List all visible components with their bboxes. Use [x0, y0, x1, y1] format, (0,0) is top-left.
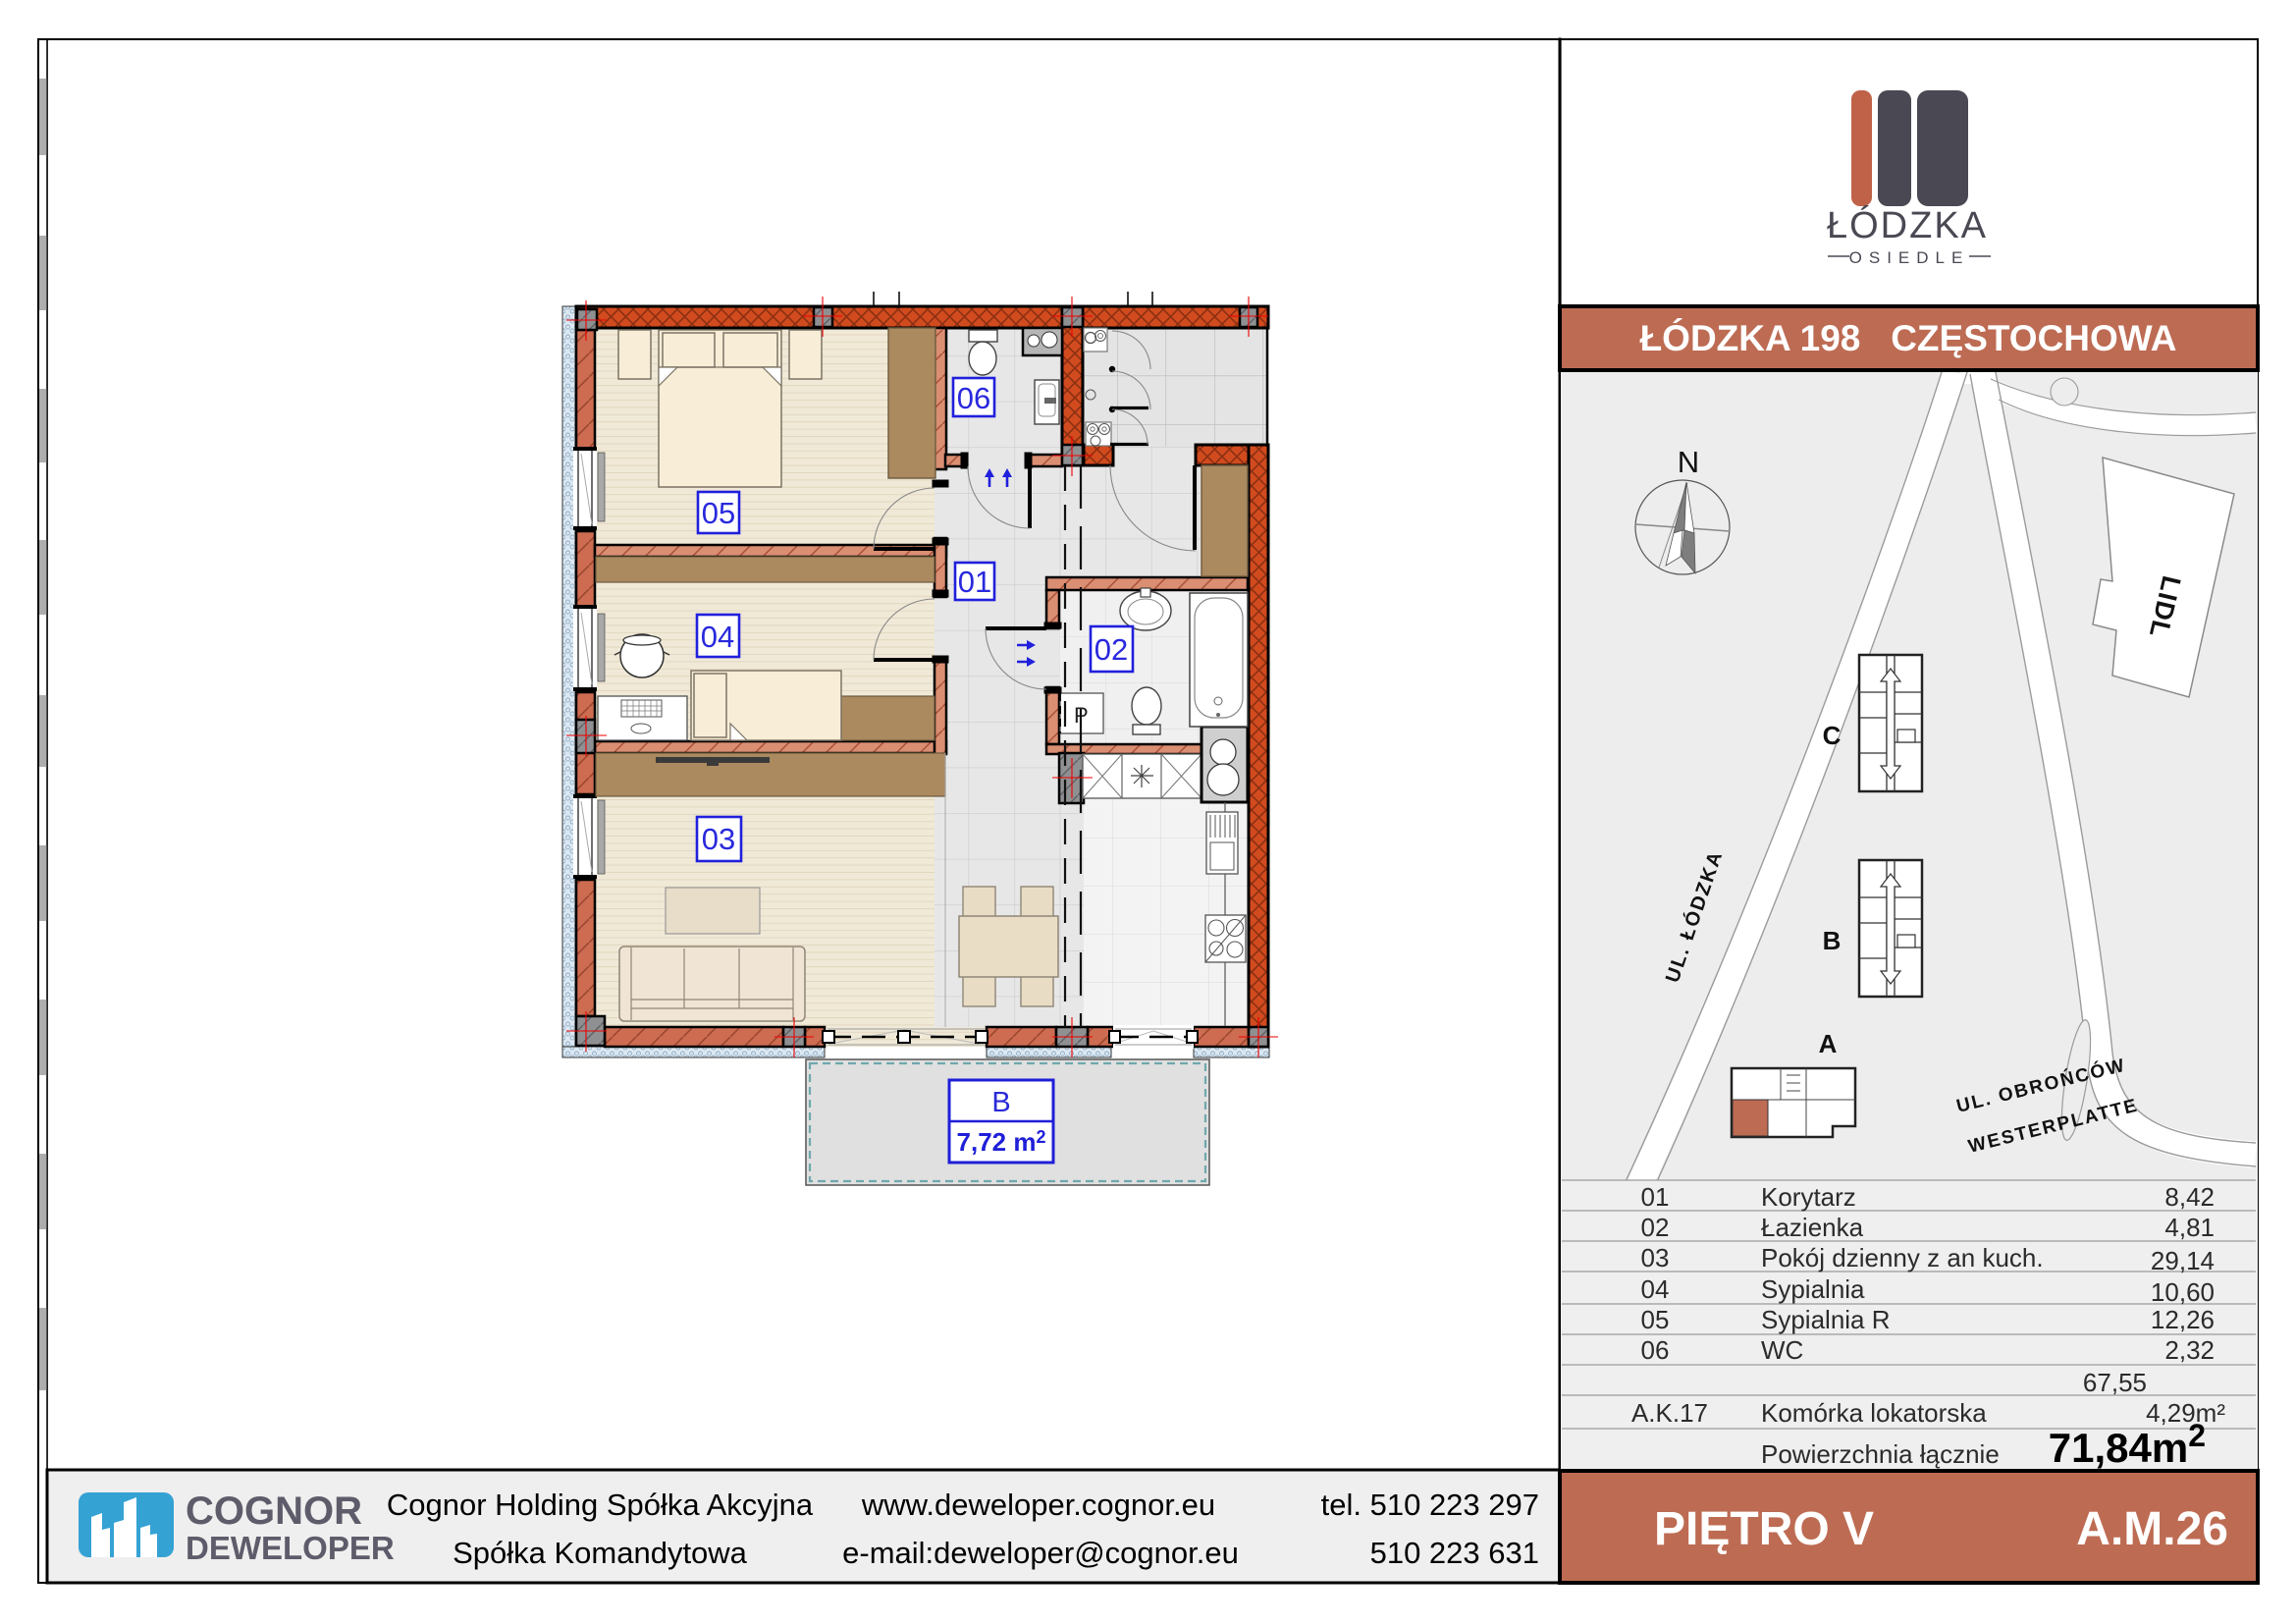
svg-text:DEWELOPER: DEWELOPER — [186, 1530, 395, 1566]
svg-text:A.M.26: A.M.26 — [2076, 1503, 2228, 1555]
svg-text:OSIEDLE: OSIEDLE — [1849, 248, 1970, 267]
svg-text:4,81: 4,81 — [2164, 1213, 2215, 1242]
svg-text:Pokój dzienny z an kuch.: Pokój dzienny z an kuch. — [1761, 1243, 2044, 1272]
svg-text:Spółka Komandytowa: Spółka Komandytowa — [453, 1536, 748, 1570]
svg-text:Powierzchnia łącznie: Powierzchnia łącznie — [1761, 1439, 2000, 1469]
svg-text:Łazienka: Łazienka — [1761, 1213, 1864, 1242]
svg-text:PIĘTRO V: PIĘTRO V — [1654, 1503, 1874, 1555]
svg-text:8,42: 8,42 — [2164, 1182, 2215, 1212]
svg-text:ŁÓDZKA 198 CZĘSTOCHOWA: ŁÓDZKA 198 CZĘSTOCHOWA — [1640, 317, 2177, 358]
svg-text:Komórka lokatorska: Komórka lokatorska — [1761, 1398, 1987, 1428]
svg-text:COGNOR: COGNOR — [186, 1489, 362, 1533]
svg-text:03: 03 — [1641, 1243, 1670, 1272]
svg-text:01: 01 — [958, 565, 991, 599]
svg-text:71,84m2: 71,84m2 — [2049, 1418, 2206, 1471]
svg-text:01: 01 — [1641, 1182, 1670, 1212]
svg-text:B: B — [1823, 926, 1842, 955]
svg-text:06: 06 — [1641, 1335, 1670, 1365]
svg-text:A.K.17: A.K.17 — [1631, 1398, 1708, 1428]
svg-text:4,29m²: 4,29m² — [2146, 1398, 2225, 1428]
svg-text:Cognor Holding Spółka Akcyjna: Cognor Holding Spółka Akcyjna — [387, 1488, 814, 1522]
svg-text:Sypialnia: Sypialnia — [1761, 1274, 1865, 1304]
svg-text:2,32: 2,32 — [2164, 1335, 2215, 1365]
svg-text:02: 02 — [1641, 1213, 1670, 1242]
svg-text:7,72 m2: 7,72 m2 — [957, 1127, 1046, 1157]
svg-text:A: A — [1819, 1029, 1838, 1058]
svg-text:e-mail:deweloper@cognor.eu: e-mail:deweloper@cognor.eu — [842, 1536, 1239, 1570]
svg-text:WC: WC — [1761, 1335, 1803, 1365]
svg-text:03: 03 — [702, 822, 735, 856]
svg-text:510 223 631: 510 223 631 — [1370, 1536, 1539, 1570]
svg-text:05: 05 — [1641, 1305, 1670, 1334]
svg-text:www.deweloper.cognor.eu: www.deweloper.cognor.eu — [861, 1488, 1215, 1522]
svg-text:10,60: 10,60 — [2151, 1277, 2215, 1307]
svg-text:29,14: 29,14 — [2151, 1246, 2215, 1275]
svg-text:06: 06 — [957, 381, 990, 415]
svg-text:12,26: 12,26 — [2151, 1305, 2215, 1334]
svg-text:N: N — [1678, 445, 1699, 479]
svg-text:05: 05 — [702, 496, 735, 530]
svg-text:Sypialnia R: Sypialnia R — [1761, 1305, 1891, 1334]
svg-text:B: B — [991, 1087, 1010, 1118]
svg-text:02: 02 — [1095, 632, 1128, 667]
svg-text:C: C — [1823, 721, 1842, 750]
svg-text:67,55: 67,55 — [2083, 1368, 2147, 1397]
svg-text:Korytarz: Korytarz — [1761, 1182, 1856, 1212]
svg-text:ŁÓDZKA: ŁÓDZKA — [1827, 204, 1988, 246]
svg-text:04: 04 — [701, 620, 734, 654]
svg-text:04: 04 — [1641, 1274, 1670, 1304]
svg-text:tel. 510 223 297: tel. 510 223 297 — [1321, 1488, 1539, 1522]
